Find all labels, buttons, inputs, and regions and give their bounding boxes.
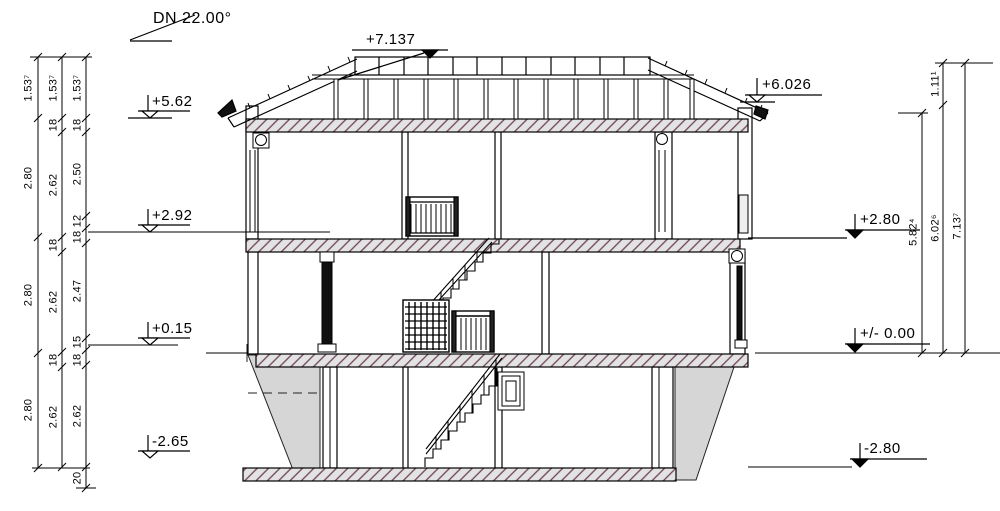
window-upper-right (739, 195, 748, 233)
ground-floor-slab (256, 354, 748, 367)
level-eave-right-label: +6.026 (762, 77, 811, 92)
dim-left-inner-7: 18 (73, 354, 84, 367)
wall-interior-2 (495, 132, 501, 239)
purlin-circle-left (256, 135, 267, 146)
dim-right-total-height: 7.13⁷ (953, 213, 964, 240)
dim-left-middle-4: 2.62 (49, 291, 60, 314)
dim-left-middle-5: 18 (49, 354, 60, 367)
roof-posts (334, 79, 694, 119)
dimension-chains-right (898, 59, 993, 357)
dim-left-outer-0: 1.53⁷ (24, 75, 35, 102)
roof-pitch-label: DN 22.00° (153, 11, 232, 27)
wall-right-basement (652, 367, 673, 468)
dim-left-inner-4: 18 (73, 231, 84, 244)
dim-left-outer-1: 2.80 (24, 167, 35, 190)
level-upper-floor-label: +2.92 (152, 208, 192, 223)
dim-left-outer-2: 2.80 (24, 284, 35, 307)
balustrade-upper-floor (406, 197, 458, 236)
building-section-drawing: DN 22.00° +7.137 +5.62 +2.92 +0.15 -2.65… (0, 0, 1000, 511)
railing-ground-b (452, 311, 494, 352)
dim-left-inner-0: 1.53⁷ (73, 75, 84, 102)
wall-interior-basement-1 (403, 367, 408, 468)
dim-left-inner-3: 12 (73, 215, 84, 228)
basement-floor-slab (243, 468, 676, 481)
railing-ground-a (403, 300, 449, 352)
gutter-left (218, 100, 236, 117)
level-basement-left-label: -2.65 (152, 434, 189, 449)
purlin-circle-right (732, 251, 743, 262)
roof (218, 57, 768, 127)
battens-right (665, 61, 762, 110)
dim-left-middle-0: 1.53⁷ (49, 75, 60, 102)
dim-left-middle-2: 2.62 (49, 174, 60, 197)
dim-left-inner-9: 20 (73, 472, 84, 485)
level-eave-left-label: +5.62 (152, 94, 192, 109)
dim-left-inner-5: 2.47 (73, 280, 84, 303)
level-basement-right-label: -2.80 (864, 441, 901, 456)
dim-left-middle-1: 18 (49, 119, 60, 132)
stair-flight-basement (425, 368, 497, 467)
ceiling-slab (246, 119, 748, 132)
dim-left-inner-2: 2.50 (73, 163, 84, 186)
dim-left-inner-6: 15 (73, 336, 84, 349)
level-ground-floor-label: +0.15 (152, 321, 192, 336)
dim-right-mid-height: 6.02⁶ (931, 214, 942, 241)
upper-floor-slab (246, 239, 740, 252)
stair-rail-basement (426, 354, 502, 454)
level-ridge-label: +7.137 (366, 32, 415, 47)
wall-interior-ground (542, 252, 549, 354)
window-ground-right (737, 266, 742, 340)
dim-right-eave-height: 5.82⁴ (909, 218, 920, 246)
level-upper-slab-right-label: +2.80 (860, 212, 900, 227)
gutter-right (754, 106, 768, 119)
window-ground-left (322, 262, 332, 344)
dim-left-middle-6: 2.62 (49, 406, 60, 429)
dim-right-ridge-eave: 1.11¹ (931, 71, 942, 97)
dim-left-outer-3: 2.80 (24, 399, 35, 422)
wall-left-ground (248, 252, 258, 354)
level-ground-zero-label: +/- 0.00 (860, 326, 915, 341)
dim-left-middle-3: 18 (49, 239, 60, 252)
stairs (403, 197, 502, 467)
dim-left-inner-8: 2.62 (73, 405, 84, 428)
section-linework (0, 0, 1000, 511)
purlin-circle-mid (657, 134, 668, 145)
dim-left-inner-1: 18 (73, 119, 84, 132)
wall-interior-3 (655, 132, 672, 239)
